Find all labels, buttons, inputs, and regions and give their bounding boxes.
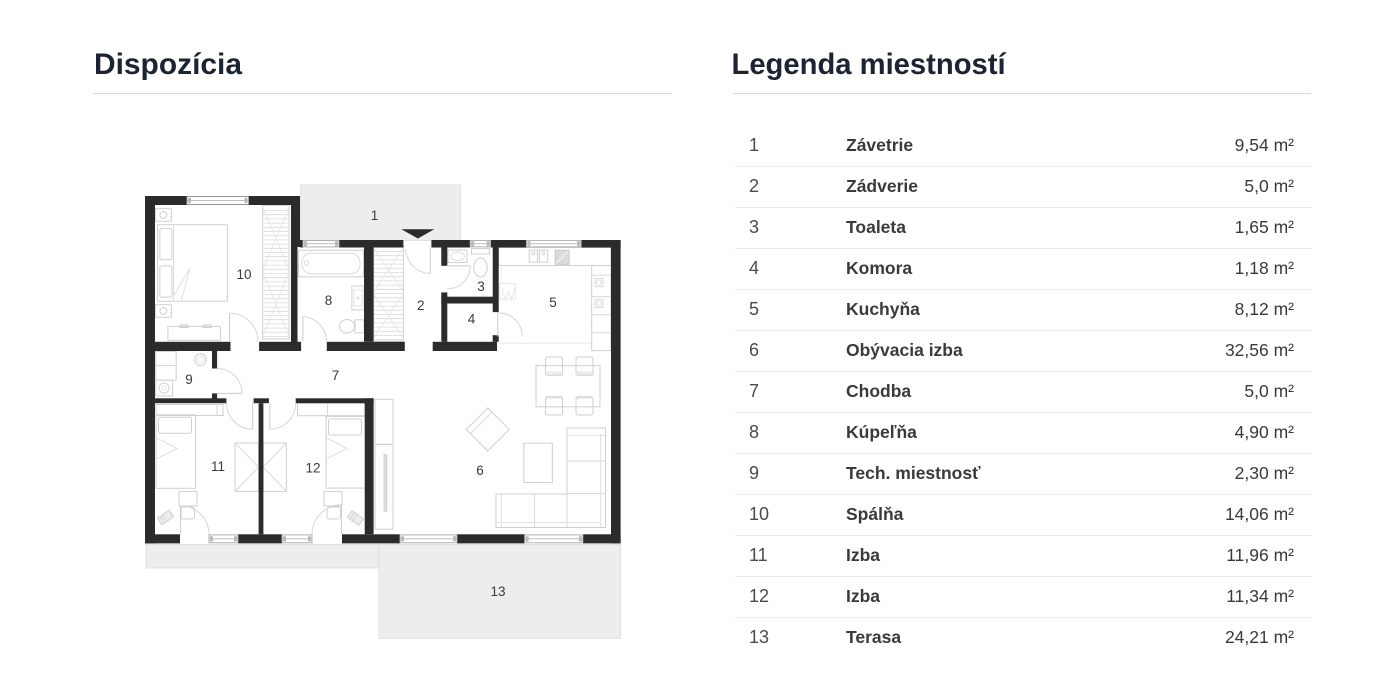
svg-text:8: 8 bbox=[325, 293, 333, 308]
svg-text:10: 10 bbox=[236, 267, 251, 282]
svg-text:13: 13 bbox=[490, 584, 505, 599]
svg-text:1: 1 bbox=[371, 208, 379, 223]
svg-text:5: 5 bbox=[549, 295, 557, 310]
svg-text:3: 3 bbox=[477, 279, 485, 294]
svg-text:4: 4 bbox=[468, 311, 476, 326]
svg-text:2: 2 bbox=[417, 298, 425, 313]
svg-text:11: 11 bbox=[211, 459, 225, 474]
svg-text:12: 12 bbox=[305, 460, 320, 475]
svg-text:6: 6 bbox=[476, 463, 484, 478]
svg-text:7: 7 bbox=[332, 368, 340, 383]
svg-text:9: 9 bbox=[185, 372, 193, 387]
